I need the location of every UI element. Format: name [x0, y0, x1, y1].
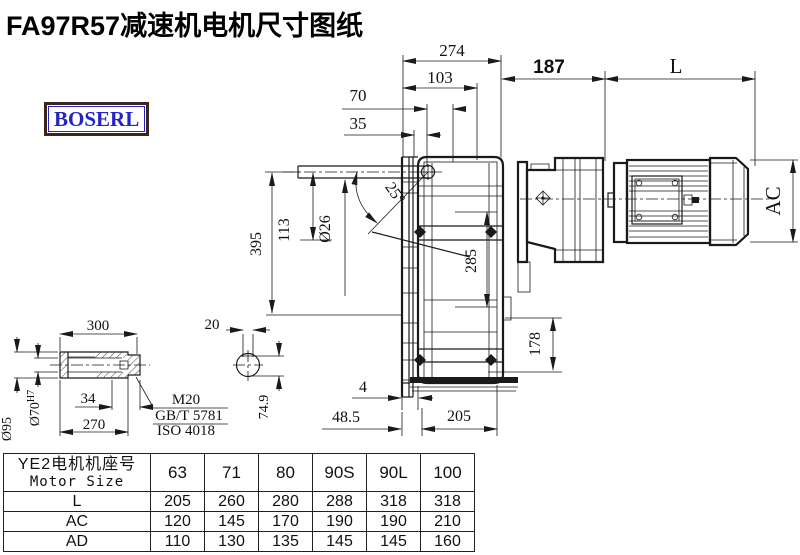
dim-20: 20 — [205, 317, 220, 333]
table-row-label: AC — [4, 512, 151, 532]
centerlines — [50, 172, 772, 381]
dimension-lines — [17, 61, 793, 432]
motor-size-table: YE2电机机座号Motor Size63718090S90L100L205260… — [3, 453, 475, 552]
dim-48-5: 48.5 — [332, 409, 360, 426]
table-cell: 145 — [205, 512, 259, 532]
table-cell: 120 — [151, 512, 205, 532]
table-cell: 170 — [259, 512, 313, 532]
table-cell: 210 — [421, 512, 475, 532]
table-cell: 145 — [367, 532, 421, 552]
dim-L: L — [670, 54, 683, 78]
dim-O95: Ø95 — [0, 417, 15, 441]
dim-285: 285 — [463, 249, 480, 273]
dim-300: 300 — [87, 318, 110, 334]
table-row-ac: AC120145170190190210 — [4, 512, 475, 532]
dim-187: 187 — [533, 57, 565, 78]
table-col-header: 90S — [313, 454, 367, 492]
table-cell: 260 — [205, 492, 259, 512]
dim-70: 70 — [350, 86, 367, 105]
table-cell: 190 — [367, 512, 421, 532]
table-header-motor-size: YE2电机机座号Motor Size — [4, 454, 151, 492]
note-iso: ISO 4018 — [157, 423, 215, 439]
table-cell: 280 — [259, 492, 313, 512]
table-row-ad: AD110130135145145160 — [4, 532, 475, 552]
dim-O70H7: Ø70H7 — [26, 390, 43, 426]
extension-lines — [14, 55, 798, 436]
angle-arc-25deg — [356, 172, 377, 223]
table-cell: 205 — [151, 492, 205, 512]
table-col-header: 63 — [151, 454, 205, 492]
table-col-header: 90L — [367, 454, 421, 492]
table-cell: 110 — [151, 532, 205, 552]
table-cell: 288 — [313, 492, 367, 512]
dimension-labels: 2741037035187LAC395113Ø2625°285178448.52… — [0, 41, 785, 441]
table-cell: 130 — [205, 532, 259, 552]
dim-270: 270 — [83, 417, 106, 433]
note-m20: M20 — [172, 392, 200, 408]
dim-34: 34 — [81, 391, 97, 407]
table-col-header: 71 — [205, 454, 259, 492]
table-col-header: 100 — [421, 454, 475, 492]
dim-4: 4 — [359, 379, 367, 396]
table-cell: 318 — [367, 492, 421, 512]
table-cell: 135 — [259, 532, 313, 552]
dim-AC: AC — [761, 186, 785, 215]
table-cell: 190 — [313, 512, 367, 532]
adapter-gear-unit — [518, 158, 603, 292]
table-header-cn: YE2电机机座号 — [4, 456, 150, 474]
terminal-panel — [632, 176, 682, 224]
motor — [608, 158, 748, 245]
note-gb: GB/T 5781 — [155, 408, 223, 424]
dim-O26: Ø26 — [317, 215, 334, 243]
table-row-label: AD — [4, 532, 151, 552]
table-row-label: L — [4, 492, 151, 512]
table-row-l: L205260280288318318 — [4, 492, 475, 512]
dim-178: 178 — [527, 332, 544, 356]
table-header-row: YE2电机机座号Motor Size63718090S90L100 — [4, 454, 475, 492]
dim-395: 395 — [248, 232, 265, 256]
dim-205: 205 — [447, 408, 471, 425]
dim-103: 103 — [427, 68, 453, 87]
table-cell: 145 — [313, 532, 367, 552]
dim-113: 113 — [276, 218, 293, 241]
dim-274: 274 — [439, 41, 465, 60]
table-cell: 318 — [421, 492, 475, 512]
dim-74-9: 74.9 — [257, 395, 272, 420]
table-cell: 160 — [421, 532, 475, 552]
dim-35: 35 — [350, 114, 367, 133]
table-header-en: Motor Size — [4, 474, 150, 490]
fan-cowl — [710, 158, 748, 245]
table-col-header: 80 — [259, 454, 313, 492]
dim-25deg: 25° — [381, 179, 408, 207]
